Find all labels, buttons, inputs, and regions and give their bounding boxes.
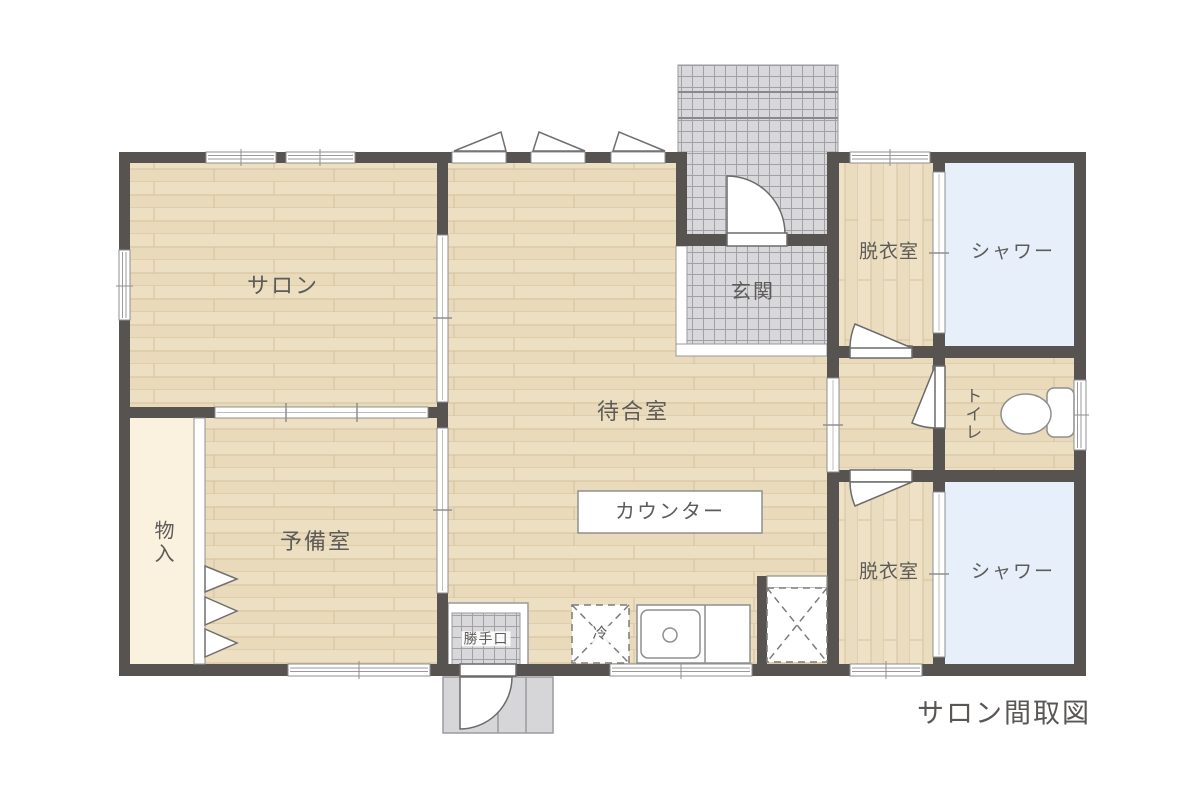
storage-label: 物入 [151, 520, 173, 566]
sliding-window [850, 661, 922, 679]
shower-bottom-label: シャワー [971, 563, 1055, 584]
wall-segment [119, 152, 687, 163]
wall-segment [827, 163, 839, 378]
sliding-window [288, 661, 430, 679]
wall-segment [933, 346, 945, 366]
wall-segment [933, 657, 945, 664]
wall-segment [119, 664, 1086, 676]
counter-label: カウンター [615, 501, 725, 523]
awning-window [531, 132, 585, 163]
wall-segment [676, 163, 687, 246]
sliding-window [286, 149, 355, 166]
refrigerator-label: 冷 [590, 626, 609, 643]
wall-segment [933, 482, 945, 492]
wall-segment [933, 163, 945, 172]
toilet-label: トイレ [962, 387, 981, 441]
back-door-label: 勝手口 [462, 631, 511, 646]
sliding-window [850, 149, 930, 166]
spare-room-label: 予備室 [280, 530, 352, 554]
entrance-porch-tile [678, 65, 838, 152]
entrance-step-edge-horizontal [676, 344, 827, 356]
sliding-window [116, 250, 133, 320]
salon-label: サロン [247, 274, 319, 298]
entrance-step-edge-vertical [676, 246, 687, 344]
shower-top-label: シャワー [971, 243, 1055, 264]
dressing-room-bottom-label: 脱衣室 [859, 563, 919, 584]
wall-segment [119, 152, 130, 676]
dressing-room-top-label: 脱衣室 [859, 243, 919, 264]
salon-floor-plan: サロン 待合室 予備室 玄関 物入 脱衣室 シャワー トイレ 脱衣室 シャワー … [0, 0, 1200, 800]
page-title: サロン間取図 [917, 692, 1091, 731]
wall-segment [933, 333, 945, 346]
wall-segment [827, 346, 850, 358]
entrance-label: 玄関 [731, 281, 775, 303]
wall-segment [827, 472, 839, 664]
wall-segment [428, 407, 448, 418]
waiting-room-label: 待合室 [597, 400, 669, 424]
wall-segment [757, 576, 767, 664]
sink-counter-icon [637, 605, 750, 663]
awning-window [452, 132, 506, 163]
laundry-pan-icon [767, 576, 827, 662]
wall-segment [437, 163, 448, 235]
awning-window [611, 132, 665, 163]
entrance-gap-tile [687, 152, 827, 163]
sliding-window [206, 149, 276, 166]
wall-segment [676, 234, 727, 246]
wall-segment [437, 593, 448, 664]
wall-segment [130, 407, 215, 418]
wall-segment [933, 428, 945, 482]
